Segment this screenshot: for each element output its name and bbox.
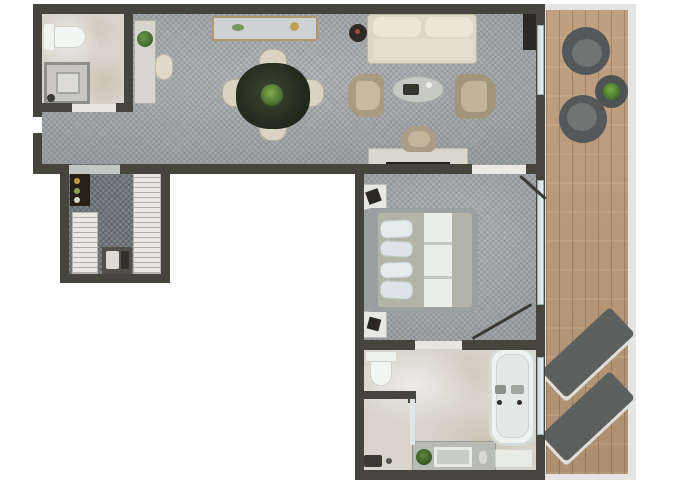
toilet-tank-entry [44, 24, 54, 50]
shower-entry-tray [56, 72, 80, 94]
window-bathroom [537, 357, 544, 435]
shower-main-fixture [364, 455, 382, 467]
bathtub-basin [496, 354, 529, 438]
pillow-4 [380, 280, 414, 300]
wardrobe-right [133, 173, 161, 274]
bathtub-faucet-1 [495, 385, 506, 394]
minibar-bottle-1 [74, 178, 80, 184]
wall-shower-top [362, 391, 414, 399]
sofa-cushion-left [373, 17, 421, 37]
sofa-cushion-right [425, 17, 473, 37]
shower-entry-drain [47, 94, 55, 102]
threshold-bedroom [472, 165, 526, 174]
hall-chair [155, 54, 173, 80]
pillow-1 [380, 219, 414, 239]
side-table-decor [355, 29, 360, 34]
bathtub-faucet-2 [511, 385, 524, 394]
minibar-bottle-3 [74, 197, 80, 203]
hall-cabinet-plant [137, 31, 153, 47]
luggage-item-dark [121, 251, 129, 269]
balcony-table-plant [603, 83, 620, 100]
dining-table-plant [261, 84, 283, 106]
toilet-bowl-entry [54, 26, 86, 48]
coffee-table-cup [424, 80, 434, 90]
threshold-main-bath [415, 341, 462, 349]
bed-runner-fold-1 [424, 242, 452, 245]
wall-wing-left [355, 164, 364, 480]
toilet-tank-main [366, 352, 396, 361]
wall-entry-bath-bottom-left [33, 103, 72, 112]
credenza-decor-green [232, 24, 244, 31]
wall-entry-bath-bottom-right [116, 103, 133, 112]
credenza-decor-gold [290, 22, 299, 31]
wall-closet-left [60, 164, 69, 282]
shower-main-drain [386, 458, 392, 464]
minibar-bottle-2 [74, 188, 80, 194]
toilet-bowl-main [370, 361, 392, 386]
bathtub-jet-1 [497, 400, 502, 405]
sofa-seat [373, 39, 473, 60]
balcony-chair-2-seat [567, 103, 597, 131]
wall-band-bottom-mid [120, 164, 472, 174]
vanity-sink [434, 447, 472, 467]
balcony-chair-1-seat [572, 39, 602, 67]
bathtub-jet-2 [517, 400, 522, 405]
desk-chair-seat [408, 131, 430, 147]
wall-closet-right [161, 164, 170, 282]
threshold-entry-bath [72, 104, 116, 112]
wall-entry-bath-right [124, 4, 133, 106]
wall-top [33, 4, 545, 14]
tv-console [523, 13, 536, 50]
bed-runner-fold-2 [424, 276, 452, 279]
credenza [212, 16, 318, 41]
armchair-left-seat [356, 81, 380, 110]
vanity-plant [416, 449, 432, 465]
luggage-item-light [106, 251, 119, 269]
minibar [70, 173, 90, 206]
wall-bedroom-bottom-left [355, 340, 415, 350]
coffee-table-tray [403, 84, 419, 95]
wall-bedroom-bottom-right [462, 340, 545, 350]
armchair-right-seat [461, 81, 487, 112]
vanity-soap [479, 451, 487, 464]
wardrobe-left [72, 212, 98, 274]
threshold-shower-glass [410, 399, 415, 445]
wall-left-upper [33, 4, 42, 117]
wall-closet-bottom [60, 274, 170, 283]
wall-bathroom-bottom [355, 470, 545, 480]
bath-mat [495, 449, 533, 468]
bed-runner [424, 213, 452, 307]
pillow-3 [380, 261, 414, 278]
pillow-2 [380, 240, 414, 257]
window-living [537, 25, 544, 95]
threshold-closet [69, 165, 120, 174]
floor-plan [0, 0, 680, 486]
